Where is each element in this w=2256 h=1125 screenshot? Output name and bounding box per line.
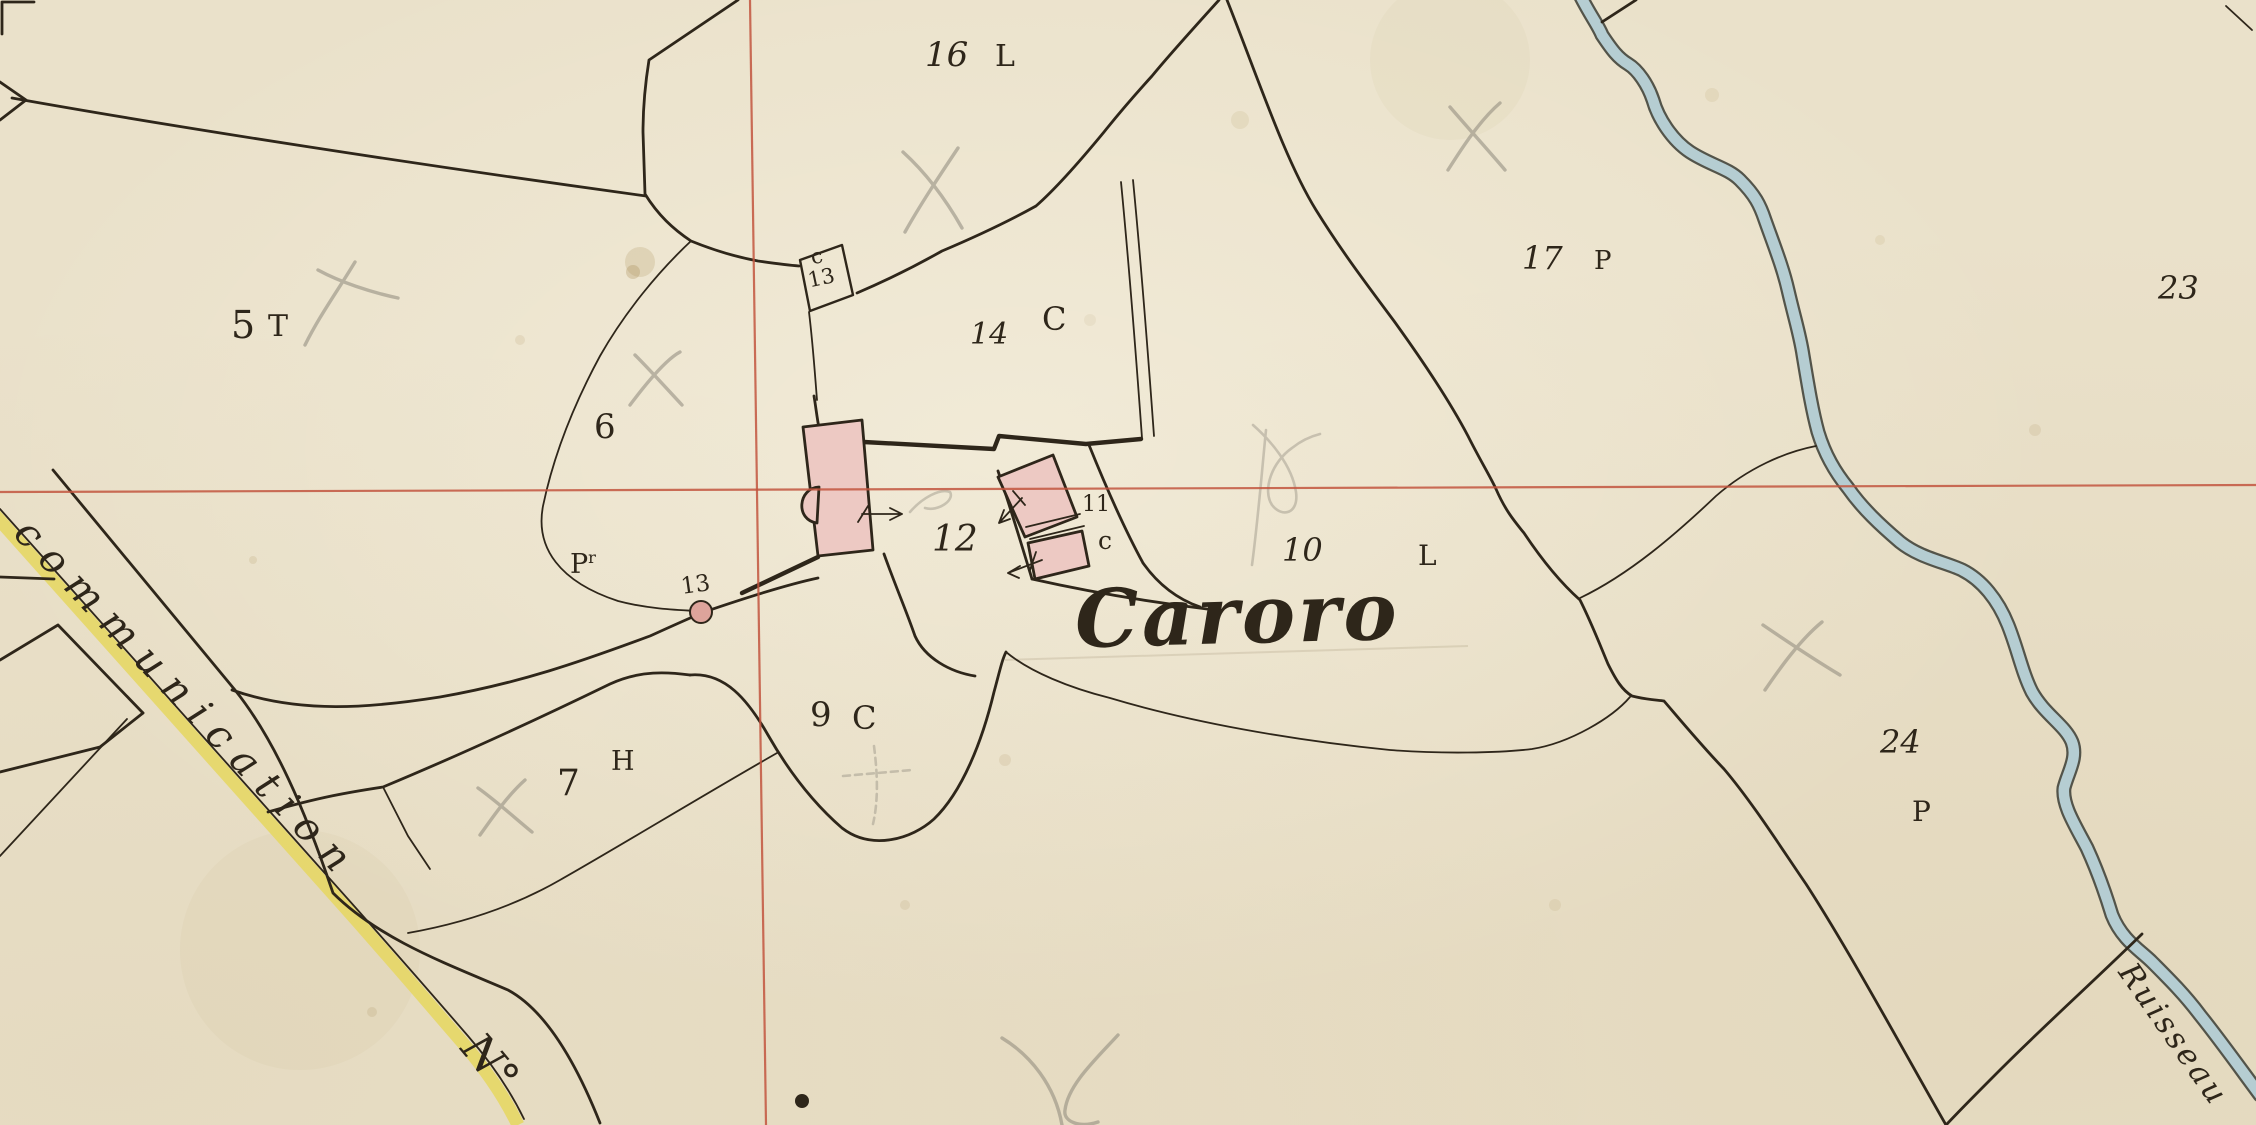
parcel-5-class: T	[268, 312, 288, 342]
stream	[1580, 0, 2256, 1095]
parcel-14-class: C	[1042, 303, 1066, 335]
parcel-10-number: 10	[1282, 534, 1323, 566]
parcel-23-number: 23	[2158, 272, 2199, 304]
survey-dot	[795, 1094, 809, 1108]
parcel-16-class: L	[995, 42, 1015, 72]
parcel-12-number: 12	[932, 522, 978, 558]
parcel-7-class: H	[611, 748, 635, 775]
parcel-11-class: c	[1098, 528, 1112, 553]
parcel-13c-label: c 13	[794, 241, 844, 293]
point-13-marker	[690, 601, 712, 623]
parcel-16-number: 16	[925, 38, 968, 72]
annotation-pr: Pr	[570, 550, 596, 578]
parcel-14-number: 14	[970, 320, 1008, 350]
building-12-oven-bump	[802, 487, 819, 523]
place-name: Caroro	[1074, 571, 1401, 659]
parcel-6-number: 6	[594, 410, 616, 444]
parcel-5-number: 5	[231, 306, 255, 344]
parcel-9-class: C	[852, 702, 876, 734]
parcel-9-number: 9	[810, 698, 832, 732]
parcel-17-class: P	[1594, 248, 1612, 274]
parcel-24-class: P	[1912, 798, 1931, 826]
map-canvas	[0, 0, 2256, 1125]
point-13-number: 13	[680, 572, 712, 599]
parcel-24-number: 24	[1880, 726, 1921, 758]
parcel-11-number: 11	[1082, 494, 1110, 516]
buildings	[690, 245, 1089, 1108]
parcel-10-class: L	[1418, 542, 1437, 570]
cadastral-map-sheet: Caroro communication N° Ruisseau 16 L 5 …	[0, 0, 2256, 1125]
parcel-7-number: 7	[557, 766, 580, 802]
parcel-17-number: 17	[1522, 242, 1563, 274]
